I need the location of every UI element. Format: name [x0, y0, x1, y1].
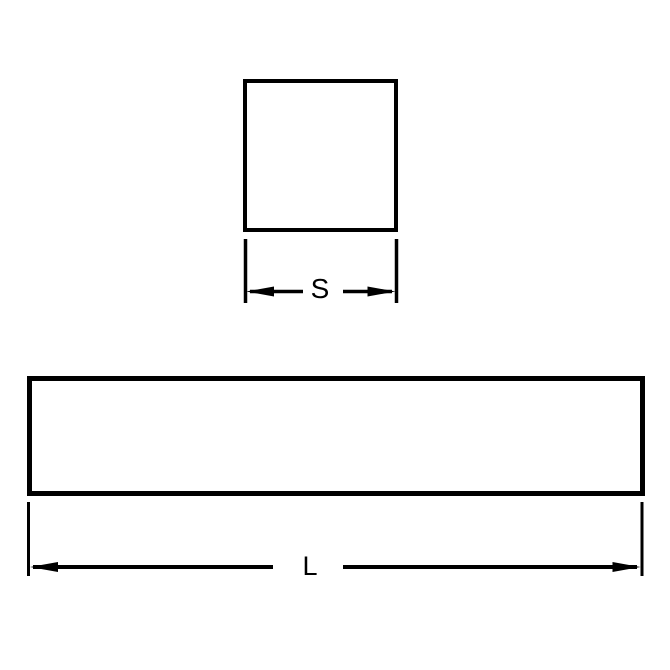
square-cross-section-view: S — [245, 81, 397, 304]
width-arrowhead-right-icon — [368, 287, 396, 297]
width-dimension-label: S — [311, 273, 330, 304]
length-arrowhead-right-icon — [613, 562, 641, 572]
diagram-canvas: S L — [0, 0, 670, 670]
length-arrowhead-left-icon — [30, 562, 58, 572]
bar-side-view: L — [29, 379, 643, 582]
square-outline — [245, 81, 396, 230]
width-arrowhead-left-icon — [246, 287, 274, 297]
bar-outline — [30, 379, 643, 494]
dimension-drawing-svg: S L — [0, 0, 670, 670]
length-dimension-label: L — [302, 551, 317, 581]
